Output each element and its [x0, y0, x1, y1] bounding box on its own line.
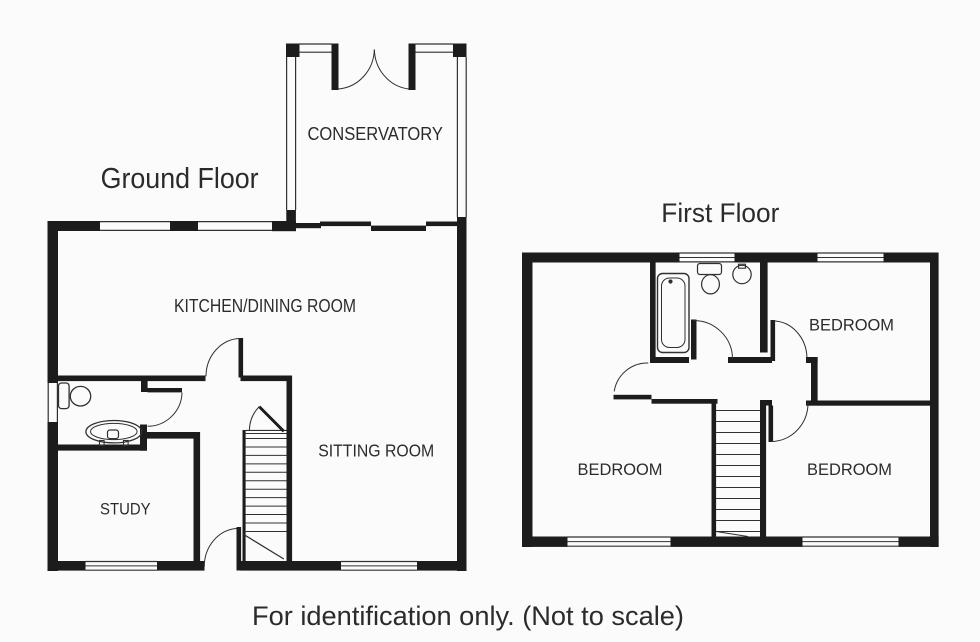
- svg-text:For identification only. (Not: For identification only. (Not to scale): [252, 601, 684, 631]
- svg-text:First Floor: First Floor: [661, 198, 779, 228]
- svg-text:CONSERVATORY: CONSERVATORY: [307, 124, 443, 144]
- svg-text:BEDROOM: BEDROOM: [807, 460, 892, 479]
- svg-text:SITTING ROOM: SITTING ROOM: [318, 441, 434, 461]
- svg-text:KITCHEN/DINING ROOM: KITCHEN/DINING ROOM: [174, 296, 356, 316]
- svg-text:BEDROOM: BEDROOM: [578, 460, 663, 479]
- svg-text:BEDROOM: BEDROOM: [809, 316, 894, 335]
- svg-text:STUDY: STUDY: [100, 500, 151, 519]
- svg-text:Ground Floor: Ground Floor: [101, 163, 259, 195]
